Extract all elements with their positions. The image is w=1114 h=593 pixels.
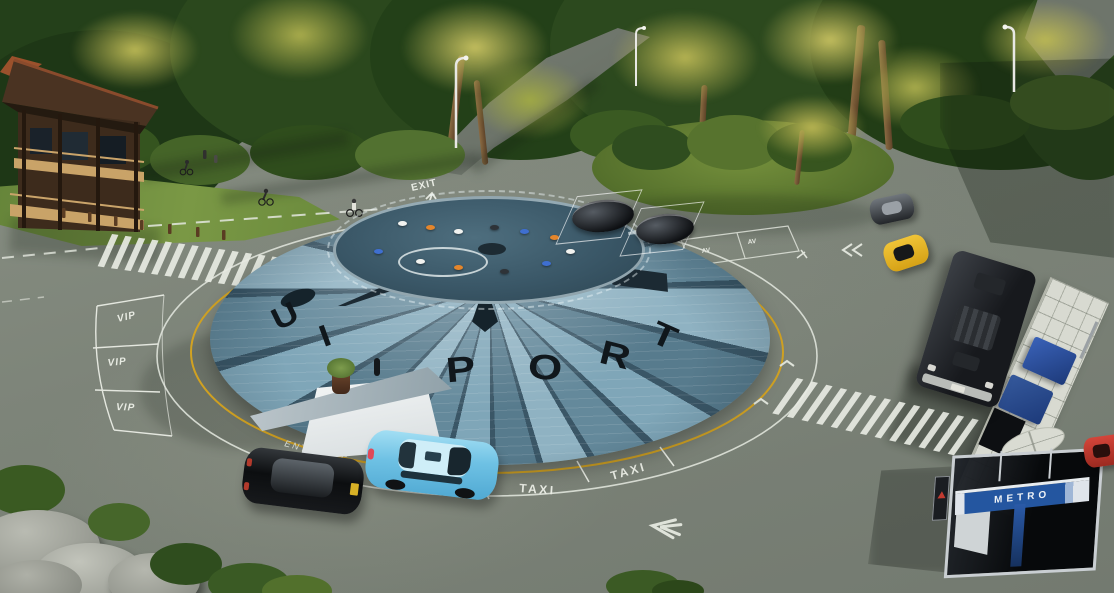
sports-car-cabin <box>892 243 915 262</box>
metro-side-sign <box>932 476 950 521</box>
deck-center-hatch <box>478 243 506 255</box>
drone <box>426 225 435 230</box>
vip-outer-arc <box>96 306 114 430</box>
lane-arrow-icon <box>651 517 681 539</box>
deck-circle-marking <box>398 247 488 277</box>
island-bush <box>612 125 692 170</box>
taxi-taillight <box>367 448 374 460</box>
bus-headlight <box>927 364 936 372</box>
bush <box>652 580 704 593</box>
vip-label: VIP <box>107 356 127 369</box>
lane-dashed-line <box>2 297 44 302</box>
av-label: AV <box>701 247 711 255</box>
bus-roof-hatch <box>952 351 981 372</box>
red-car <box>1082 433 1114 468</box>
drone <box>520 229 529 234</box>
bus-roof-vents <box>949 304 1002 351</box>
bus-shelter <box>1021 336 1077 386</box>
potted-plant-foliage <box>327 358 355 378</box>
dome-letter: P <box>445 351 477 389</box>
bush <box>88 503 150 541</box>
drone <box>374 249 383 254</box>
palm-frond-highlight <box>70 10 200 90</box>
vip-label: VIP <box>116 310 137 325</box>
drone <box>416 259 425 264</box>
guide-arrow-icon <box>754 399 768 404</box>
taxi-wheel <box>454 487 475 499</box>
taxi-windshield <box>447 447 473 475</box>
bus-headlight <box>984 381 993 389</box>
person-at-entrance <box>374 358 380 376</box>
drone <box>500 269 509 274</box>
drone <box>398 221 407 226</box>
drone <box>454 265 463 270</box>
drone <box>454 229 463 234</box>
platform-sign-pole <box>1079 321 1098 359</box>
dome-letter: O <box>527 349 564 387</box>
taxi-label: TAXI <box>609 459 648 483</box>
bush <box>0 465 65 515</box>
vip-label: VIP <box>116 402 135 414</box>
metro-entrance: METRO <box>944 448 1104 579</box>
drone <box>566 249 575 254</box>
sedan-license-plate <box>350 483 359 496</box>
guide-arrow-icon <box>797 250 807 258</box>
red-car-cabin <box>1092 443 1111 458</box>
vip-divider <box>97 295 164 306</box>
metro-side-sign-arrow-icon <box>937 491 945 498</box>
aerial-scene-droneport: VIP VIP VIP ENTRANCE EXIT TAXI TAXI AV A… <box>0 0 1114 593</box>
taxi-label: TAXI <box>519 481 556 498</box>
vip-divider <box>93 344 158 348</box>
guide-arrow-icon <box>780 361 794 366</box>
double-chevron-icon <box>843 244 862 256</box>
vip-divider <box>114 430 172 436</box>
taxi-roof-sign <box>425 451 442 462</box>
drone <box>490 225 499 230</box>
bus-roof-hatch <box>973 272 1006 296</box>
taxi-wheel <box>385 478 406 490</box>
dark-car-roof <box>881 200 903 216</box>
palm-frond-highlight <box>610 10 760 105</box>
taxi-rear-window <box>398 441 417 469</box>
rock-garden <box>0 455 330 593</box>
island-palm-highlight <box>757 95 867 160</box>
drone <box>542 261 551 266</box>
